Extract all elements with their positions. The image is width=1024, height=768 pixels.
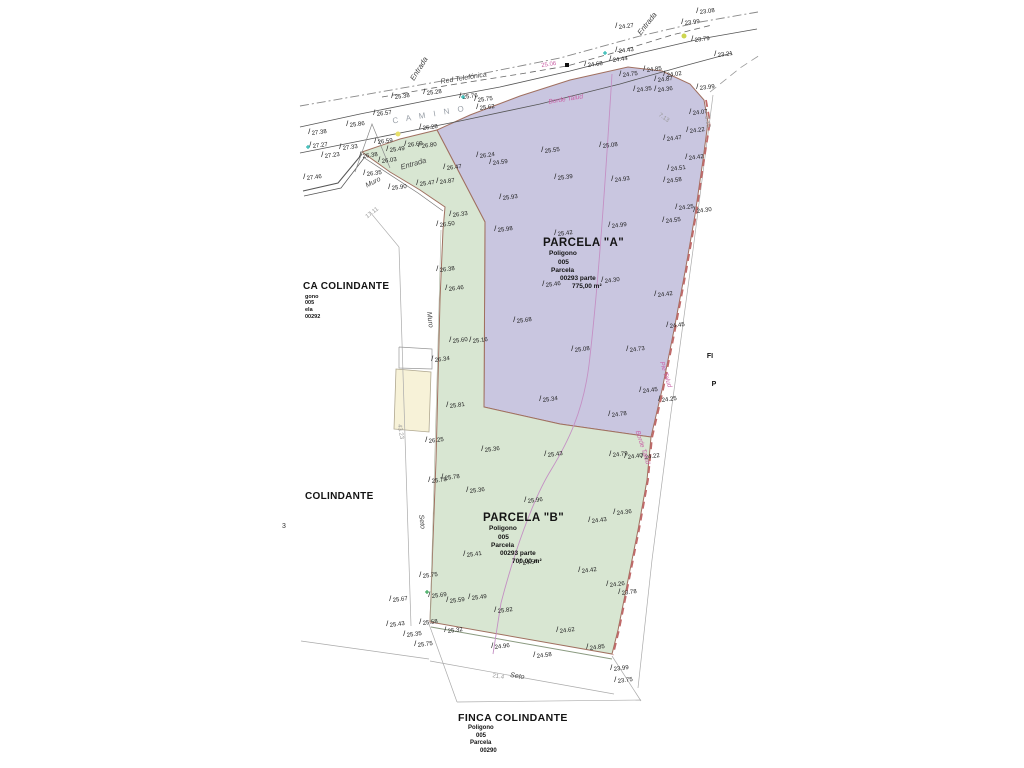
plan-line-11 [301,641,429,659]
elevation-label: 25.58 [422,619,438,627]
elevation-tick [534,652,536,658]
stray-digit: 3 [282,523,286,532]
finca-colindante-bottom-line: 00290 [480,748,568,756]
elevation-tick [492,643,494,649]
parcel-a-line: 005 [558,259,624,267]
plan-line-18 [710,55,760,92]
elevation-label: 24.25 [661,396,677,404]
parcel-b-line: 005 [498,534,564,542]
elevation-tick [389,184,391,190]
elevation-tick [340,144,342,150]
finca-colindante-left-title: CA COLINDANTE [303,281,389,294]
elevation-label: 26.35 [366,170,382,178]
finca-colindante-bottom-block: FINCA COLINDANTE Poligono 005 Parcela 00… [458,712,568,755]
elevation-label: 25.75 [417,641,433,649]
elevation-tick [415,641,417,647]
elevation-label: 25.75 [477,96,493,104]
elevation-label: 27.33 [342,144,358,152]
elevation-label: 27.27 [312,142,328,150]
parcel-b-label-block: PARCELA "B" Poligono 005 Parcela 00293 p… [483,511,564,566]
elevation-tick [420,572,422,578]
cadastral-plan: 27.3827.2727.2327.4627.3326.3526.3826.59… [0,0,1024,768]
elevation-label: 24.68 [587,61,603,69]
colindante-left-block: COLINDANTE [305,491,374,504]
parcel-b-area: 700,00 m² [512,558,564,566]
elevation-label: 24.58 [536,652,552,660]
survey-square-symbol [565,63,569,67]
elevation-tick [692,36,694,42]
elevation-tick [682,19,684,25]
parcel-a-line: Poligono [549,250,624,258]
colindante-left-title: COLINDANTE [305,491,374,504]
map-label-seto: Seto [510,672,525,681]
elevation-label: 27.23 [324,152,340,160]
finca-colindante-left-line: 005 [305,300,389,307]
elevation-tick [404,631,406,637]
elevation-label: 23.99 [684,19,700,27]
plan-line-13 [429,624,457,702]
elevation-tick [420,124,422,130]
elevation-label: 25.35 [406,631,422,639]
elevation-tick [697,84,699,90]
elevation-label: 25.67 [392,596,408,604]
elevation-tick [697,8,699,14]
elevation-tick [374,110,376,116]
map-label-muro: Muro [425,311,434,328]
parcel-b-line: Poligono [489,525,564,533]
elevation-tick [390,596,392,602]
map-label-43-23: 43.23 [396,424,405,440]
parcel-a-area: 775,00 m² [572,283,624,291]
elevation-tick [616,23,618,29]
elevation-tick [477,104,479,110]
finca-colindante-left-line: gono [305,294,389,301]
elevation-label: 26.57 [376,110,392,118]
elevation-tick [715,51,717,57]
elevation-tick [611,665,613,671]
elevation-label: 23.75 [617,677,633,685]
elevation-label: 25.90 [391,184,407,192]
elevation-label: 24.44 [612,56,628,64]
plan-line-19 [399,347,432,369]
elevation-label: 25.43 [389,621,405,629]
elevation-label: 23.08 [699,8,715,16]
elevation-tick [460,93,462,99]
elevation-label: 23.78 [621,589,637,597]
elevation-label: 25.32 [447,627,463,635]
parcel-b-title: PARCELA "B" [483,511,564,525]
plan-line-10 [370,212,399,247]
elevation-tick [616,47,618,53]
parcel-b-line: Parcela [491,542,564,550]
map-label-red-telef-nica: Red Telefónica [440,71,487,85]
elevation-label: 23.99 [699,84,715,92]
elevation-tick [437,221,439,227]
finca-colindante-left-line: 00292 [305,314,389,321]
plan-line-15 [457,700,641,702]
elevation-tick [429,477,431,483]
map-label-p: P [712,381,717,388]
finca-colindante-bottom-line: 005 [476,733,568,741]
map-label-21-4: 21.4 [492,673,505,681]
map-label-seto: Seto [417,514,426,529]
finca-colindante-left-block: CA COLINDANTE gono 005 ela 00292 [303,281,389,321]
parcel-a-label-block: PARCELA "A" Poligono 005 Parcela 00293 p… [543,236,624,291]
elevation-label: 24.43 [618,47,634,55]
elevation-tick [615,677,617,683]
elevation-tick [347,121,349,127]
polygon-building [394,369,431,432]
parcel-a-line: 00293 parte [560,275,624,283]
elevation-label: 23.79 [694,36,710,44]
elevation-label: 24.96 [494,643,510,651]
elevation-tick [304,174,306,180]
elevation-tick [322,152,324,158]
elevation-label: 25.86 [349,121,365,129]
elevation-tick [364,170,366,176]
finca-colindante-bottom-line: Poligono [468,725,568,733]
survey-dot-symbol [396,132,401,137]
elevation-tick [387,621,389,627]
map-label-entrada: Entrada [408,55,430,82]
elevation-tick [310,142,312,148]
elevation-tick [420,619,422,625]
finca-colindante-left-line: ela [305,307,389,314]
elevation-label: 24.30 [696,207,712,215]
elevation-label: 23.21 [717,51,733,59]
elevation-label: 27.46 [306,174,322,182]
elevation-label: 27.38 [311,129,327,137]
elevation-label: 24.45 [669,322,685,330]
finca-colindante-bottom-line: Parcela [470,740,568,748]
plan-svg: 27.3827.2727.2327.4627.3326.3526.3826.59… [0,0,1024,768]
elevation-tick [426,437,428,443]
elevation-tick [437,266,439,272]
elevation-label: 25.28 [426,89,442,97]
elevation-label: 23.99 [613,665,629,673]
finca-colindante-bottom-title: FINCA COLINDANTE [458,712,568,725]
elevation-label: 25.38 [394,93,410,101]
elevation-tick [309,129,311,135]
survey-dot-symbol [682,34,687,39]
map-label-fi: FI [707,353,713,360]
elevation-label: 24.27 [618,23,634,31]
parcel-b-line: 00293 parte [500,550,564,558]
map-label-17-11: 17.11 [365,206,381,220]
parcel-a-line: Parcela [551,267,624,275]
parcel-a-title: PARCELA "A" [543,236,624,250]
